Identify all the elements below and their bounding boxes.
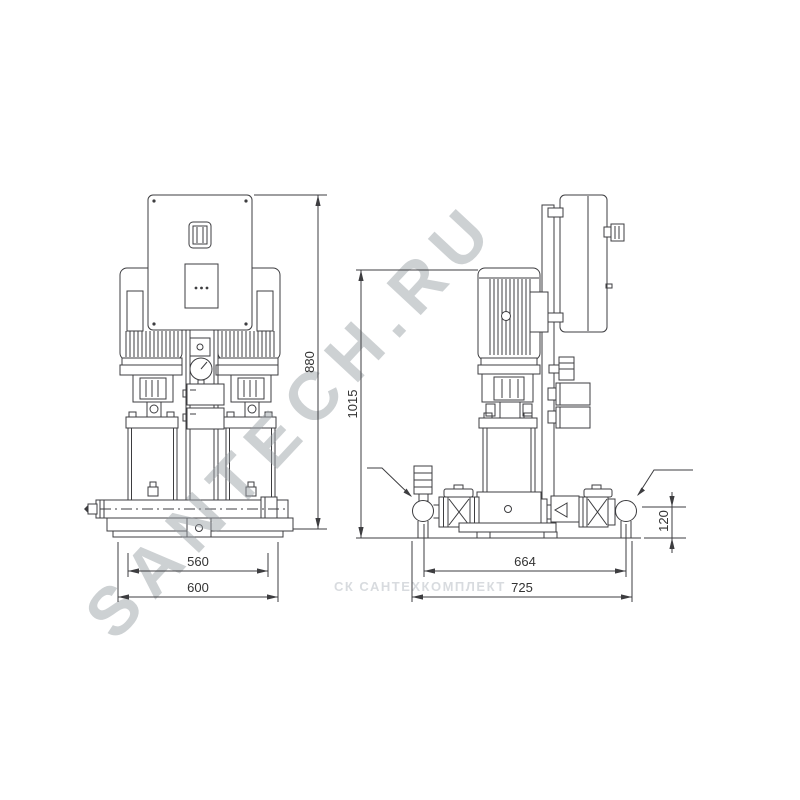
dim-560-label: 560 <box>187 554 209 569</box>
cabinet-screw-icon <box>152 322 155 325</box>
pipe-flange-right <box>616 501 637 522</box>
dim-120: 120 <box>642 492 686 553</box>
suction-pipe <box>413 466 480 527</box>
pressure-switches <box>548 357 590 428</box>
side-mounting-plate <box>542 205 554 523</box>
motor-side <box>478 268 548 374</box>
cable-gland-icon <box>604 227 611 237</box>
port-leader-right <box>637 470 693 496</box>
pump-side <box>477 374 541 523</box>
cabinet-screw-icon <box>244 322 247 325</box>
pump-left <box>126 375 178 500</box>
dim-664-label: 664 <box>514 554 536 569</box>
dim-600-label: 600 <box>187 580 209 595</box>
watermark-secondary: СК САНТЕХКОМПЛЕКТ <box>334 579 506 594</box>
discharge-pipe <box>541 485 637 527</box>
dim-880-label: 880 <box>302 351 317 373</box>
dim-725-label: 725 <box>511 580 533 595</box>
control-cabinet-front <box>148 195 252 330</box>
control-cabinet-side <box>548 195 624 332</box>
dim-1015-label: 1015 <box>345 390 360 419</box>
ball-valve-left <box>439 485 479 527</box>
cabinet-handle <box>189 222 211 248</box>
pressure-gauge <box>190 358 212 386</box>
dimensional-drawing-canvas: SANTECH.RU СК САНТЕХКОМПЛЕКТ 880 560 600… <box>0 0 800 800</box>
dim-120-label: 120 <box>656 510 671 532</box>
port-leader-left <box>367 468 412 497</box>
ball-valve-right <box>579 485 615 527</box>
motor-eyelet-icon <box>502 312 511 321</box>
check-valve <box>551 496 579 522</box>
cabinet-screw-icon <box>152 199 155 202</box>
pipe-flange-left <box>413 501 434 522</box>
pump-booster-drawing: SANTECH.RU СК САНТЕХКОМПЛЕКТ 880 560 600… <box>0 0 800 800</box>
cabinet-screw-icon <box>244 199 247 202</box>
